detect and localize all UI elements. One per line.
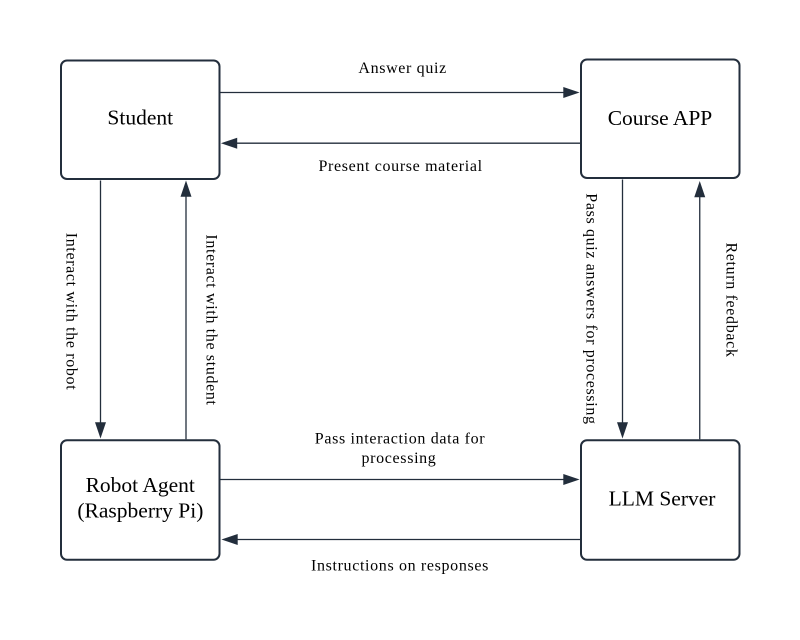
svg-text:processing: processing [362, 450, 437, 467]
svg-text:Instructions on responses: Instructions on responses [311, 558, 489, 575]
svg-text:Pass interaction data for: Pass interaction data for [315, 431, 485, 448]
svg-text:LLM Server: LLM Server [609, 486, 716, 510]
svg-text:Robot Agent: Robot Agent [86, 473, 195, 497]
svg-text:Course APP: Course APP [608, 106, 713, 130]
svg-text:Answer quiz: Answer quiz [358, 60, 446, 77]
svg-text:Return feedback: Return feedback [723, 242, 740, 357]
svg-text:Pass quiz answers for processi: Pass quiz answers for processing [582, 193, 599, 424]
svg-text:(Raspberry Pi): (Raspberry Pi) [77, 499, 203, 523]
svg-text:Present course material: Present course material [318, 158, 482, 175]
svg-text:Interact with the robot: Interact with the robot [63, 233, 80, 391]
svg-text:Student: Student [107, 105, 173, 129]
svg-text:Interact with the student: Interact with the student [202, 234, 219, 405]
